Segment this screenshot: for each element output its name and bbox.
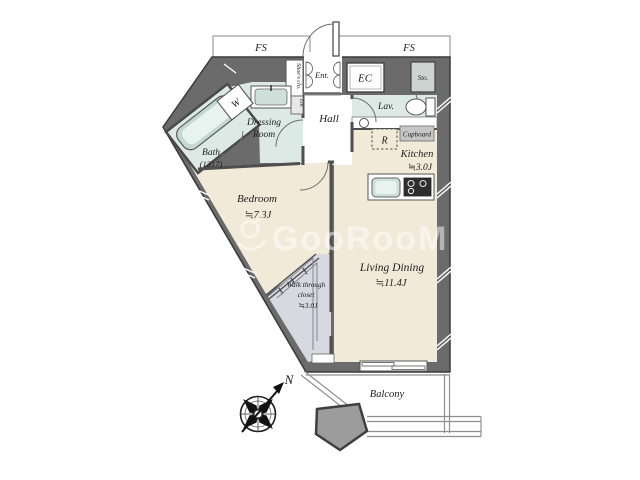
closet-low-window xyxy=(312,354,334,363)
balcony-column xyxy=(316,404,367,450)
kitchen-label: Kitchen xyxy=(400,149,434,160)
hall-label: Hall xyxy=(318,113,339,125)
entrance-closet-label: EC xyxy=(357,73,373,85)
watermark-text: GooRooM xyxy=(272,220,448,258)
lavatory-label: Lav. xyxy=(377,102,394,112)
refrigerator-label: R xyxy=(380,136,387,147)
entry-door-leaf xyxy=(333,22,339,56)
room-hall xyxy=(303,95,352,165)
shoes-closet-label: Shoe's clo. xyxy=(295,63,302,89)
bedroom-label: Bedroom xyxy=(237,193,277,205)
fs-left-label: FS xyxy=(254,43,267,54)
cupboard-label: Cupboard xyxy=(403,131,432,139)
window-pane-1 xyxy=(362,363,394,367)
entrance-label: Ent. xyxy=(314,70,329,80)
toilet-tank-icon xyxy=(426,98,435,116)
stove-icon xyxy=(404,178,431,196)
compass-north-label: N xyxy=(284,372,295,387)
kitchen-sink-inner xyxy=(376,181,397,194)
bath-size-label: (1317) xyxy=(200,159,223,169)
closet-label-2: closet xyxy=(298,291,316,299)
closet-area-label: ≒3.0J xyxy=(299,301,319,310)
fs-right-label: FS xyxy=(402,43,415,54)
closet-label-1: Walk through xyxy=(287,281,326,289)
floor-plan-svg: FS FS xyxy=(0,0,640,480)
balcony-label: Balcony xyxy=(370,389,405,400)
linen-label: Lin. xyxy=(298,98,304,108)
compass-rose-icon: N xyxy=(240,372,295,432)
living-dining-area-label: ≒11.4J xyxy=(375,278,407,289)
fs-shaft-right xyxy=(339,36,450,57)
north-arrow-icon xyxy=(273,382,284,394)
living-dining-label: Living Dining xyxy=(359,262,424,274)
toilet-icon xyxy=(406,99,426,115)
storage-label: Sto. xyxy=(418,75,429,82)
window-pane-2 xyxy=(392,366,425,370)
dressing-room-label-2: Room xyxy=(252,130,275,140)
washer-pan-icon xyxy=(360,119,369,128)
kitchen-area-label: ≒3.0J xyxy=(408,163,433,173)
bath-label: Bath xyxy=(202,148,220,158)
dressing-room-label-1: Dressing xyxy=(246,118,281,128)
vanity-basin-icon xyxy=(255,89,287,105)
floor-plan-image: FS FS xyxy=(0,0,640,480)
